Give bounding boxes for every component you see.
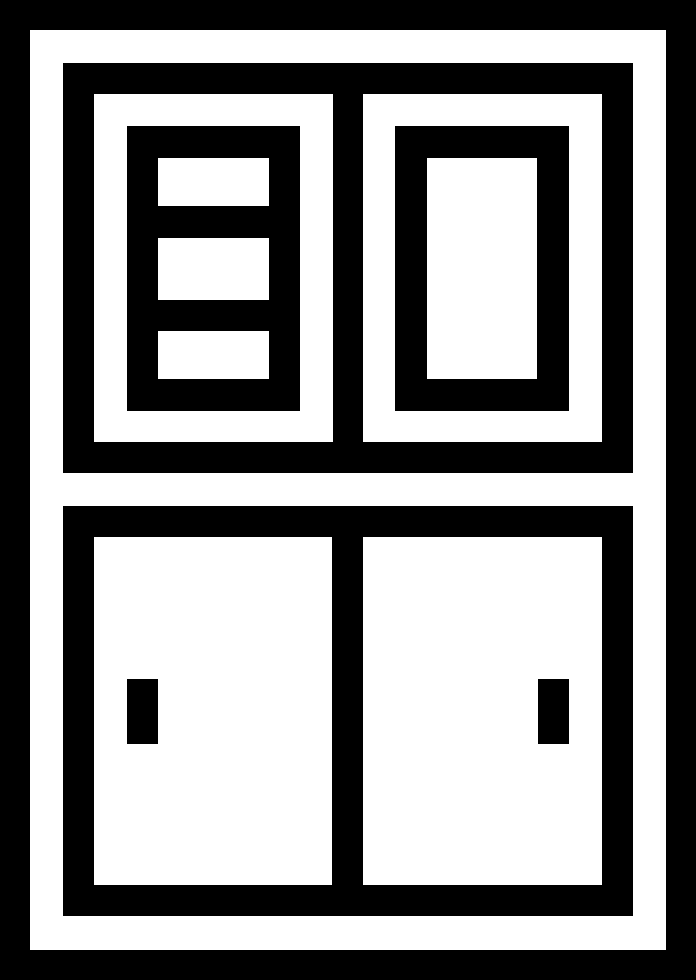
top-section-divider (333, 63, 363, 473)
drawer-slot-middle (158, 238, 269, 300)
cupboard-icon-svg (0, 0, 696, 980)
top-door-inner-panel (427, 158, 537, 379)
right-door-handle (538, 679, 569, 744)
drawer-slot-bottom (158, 331, 269, 379)
left-door-handle (127, 679, 158, 744)
bottom-section-divider (332, 506, 363, 916)
cupboard-icon (0, 0, 696, 980)
drawer-slot-top (158, 158, 269, 206)
